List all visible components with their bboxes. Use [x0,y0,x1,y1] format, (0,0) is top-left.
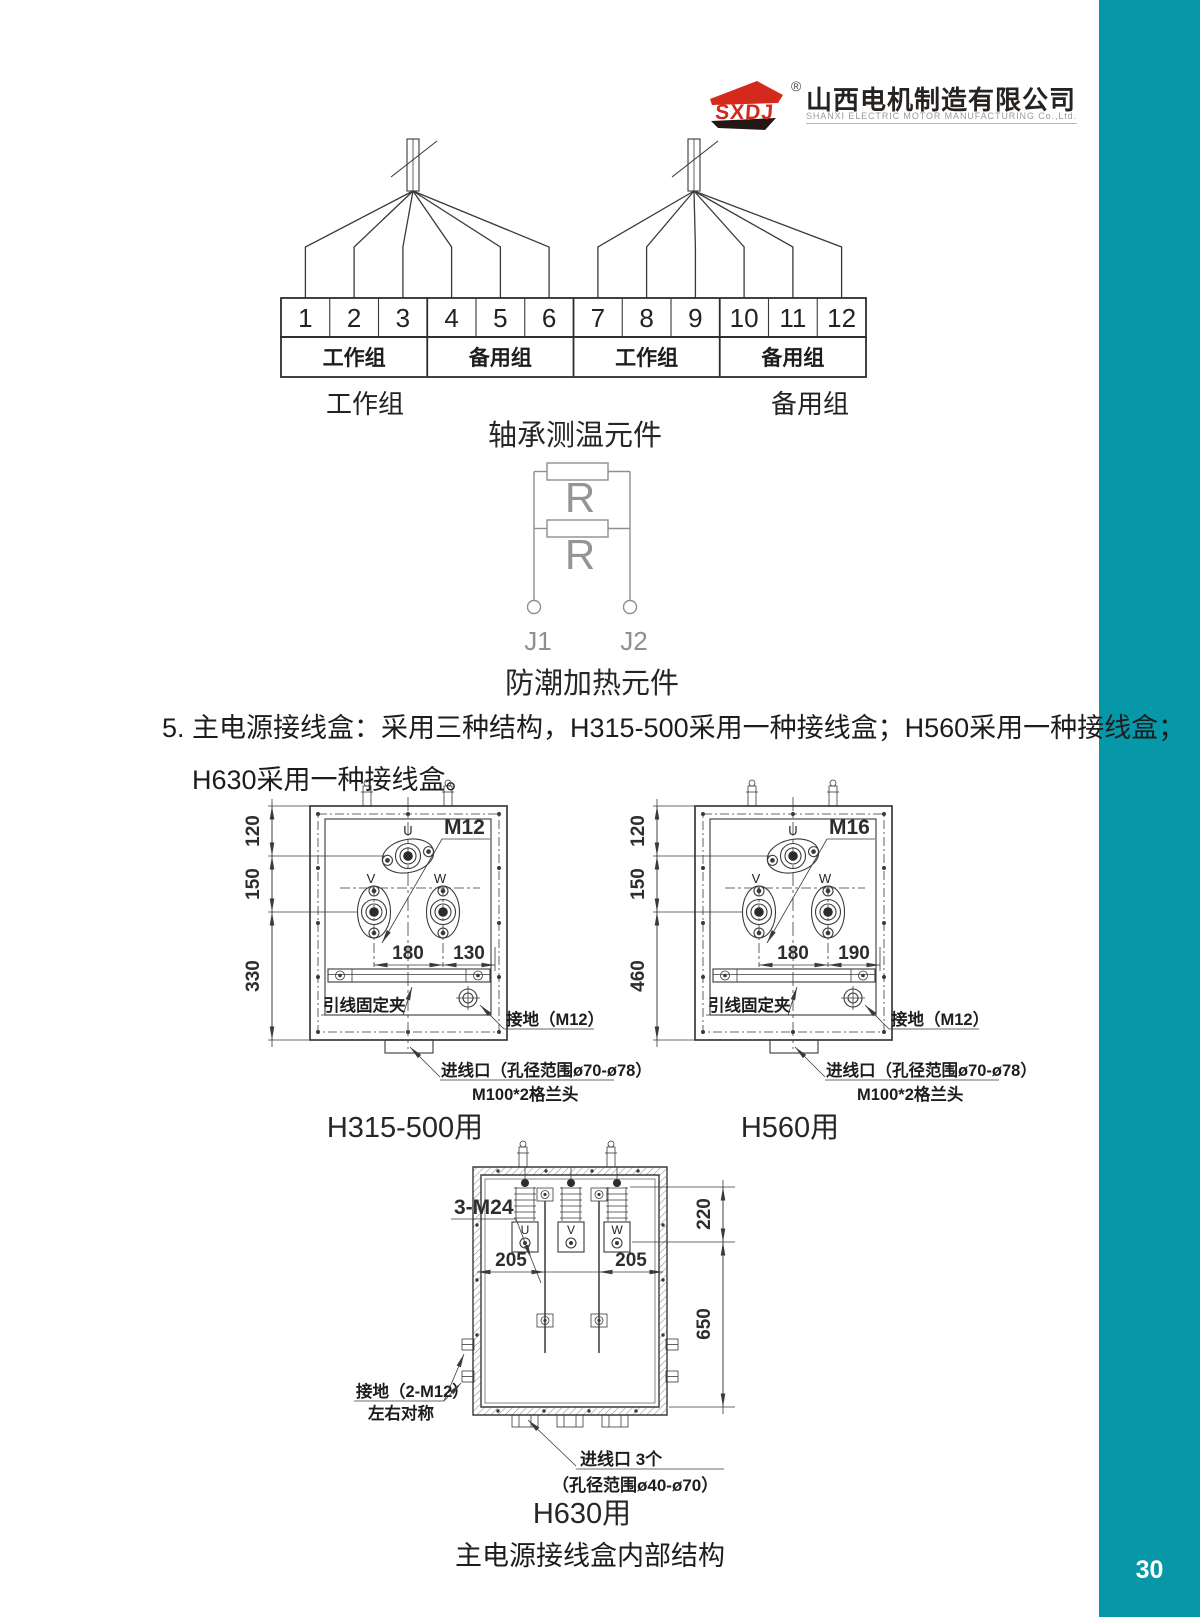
terminal-cell: 5 [493,303,507,333]
terminal-cell: 12 [827,303,856,333]
terminal-w: W [427,871,460,938]
dimension-horizontal: 180 130 [374,943,495,971]
junction-box-h560-drawing: 120 150 460 [625,755,1005,1155]
terminal-cell: 2 [347,303,361,333]
dim-190: 190 [838,943,870,964]
terminal-u-label: U [788,823,797,838]
inlet-label-2: （孔径范围ø40-ø70） [552,1475,718,1495]
logo-en-name: SHANXI ELECTRIC MOTOR MANUFACTURING Co.,… [806,111,1077,124]
lifting-bolt-icon [827,780,839,806]
inlet-label-2: M100*2格兰头 [857,1084,963,1104]
terminal-cell: 6 [542,303,556,333]
junction-box-h315-500-drawing: 120 150 330 [240,755,620,1155]
terminal-j1-label: J1 [524,626,551,656]
bearing-temp-diagram: 1 2 3 4 5 6 7 8 9 10 11 12 工作组 备用组 工作组 备… [255,125,895,465]
dim-205-left: 205 [495,1250,527,1271]
group-label: 备用组 [468,346,532,370]
clamp-label: 引线固定夹 [323,995,406,1015]
ground-label-1: 接地（2-M12） [356,1381,469,1401]
registered-mark: ® [791,78,801,94]
heater-diagram-caption: 防潮加热元件 [505,667,679,700]
terminal-cell: 9 [688,303,702,333]
terminal-v: V [358,871,391,938]
lifting-bolt-icon [517,1141,529,1167]
ground-bolt-icon [456,986,480,1010]
temp-probe-icon [672,139,718,191]
company-logo: SXDJ ® 山西电机制造有限公司 SHANXI ELECTRIC MOTOR … [706,74,1026,132]
lifting-bolt-icon [442,780,454,806]
svg-text:SXDJ: SXDJ [714,101,774,124]
stud-size-label: M16 [829,816,870,839]
inlet-label-1: 进线口 3个 [580,1449,663,1469]
dimension-horizontal: 180 190 [759,943,880,971]
dim-330: 330 [243,960,264,992]
terminal-w-label: W [819,871,832,886]
insulator-stud-u: U [512,1167,538,1252]
cable-inlet: 进线口（孔径范围ø70-ø78） M100*2格兰头 [385,1040,652,1104]
terminal-v-label: V [752,871,761,886]
terminal-cell: 11 [779,303,806,333]
clamp-label: 引线固定夹 [708,995,791,1015]
box-caption: H630用 [533,1498,631,1530]
dim-180: 180 [777,943,809,964]
dimension-horizontal: 205 205 [477,1250,663,1272]
ground-label: 接地（M12） [891,1009,989,1029]
terminal-v-label: V [367,871,376,886]
inlet-label-2: M100*2格兰头 [472,1084,578,1104]
inlet-callout: 进线口 3个 （孔径范围ø40-ø70） [528,1420,724,1495]
backup-group-label: 备用组 [771,389,849,419]
terminal-u-label: U [403,823,412,838]
dimension-chain-right: 220 650 [630,1180,735,1414]
logo-mark-icon: SXDJ [706,78,788,132]
terminal-cell: 10 [730,303,759,333]
terminal-cell: 1 [298,303,312,333]
dim-120: 120 [243,815,264,847]
ground-bolt-icon [841,986,865,1010]
cable-inlet: 进线口（孔径范围ø70-ø78） M100*2格兰头 [770,1040,1037,1104]
cables-and-clamps [537,1188,607,1353]
dim-130: 130 [453,943,485,964]
lead-clamp-bar [713,969,875,982]
ground-label: 接地（M12） [506,1009,604,1029]
ground-callout: 接地（2-M12） 左右对称 [354,1354,469,1423]
terminal-cell: 3 [396,303,410,333]
heater-diagram: R R J1 J2 防潮加热元件 [455,450,695,710]
clamp-callout: 引线固定夹 [706,987,797,1015]
terminal-v: V [743,871,776,938]
lifting-bolt-icon [746,780,758,806]
clamp-callout: 引线固定夹 [321,987,412,1015]
resistor-label: R [565,474,595,521]
section5-line1: 5. 主电源接线盒：采用三种结构，H315-500采用一种接线盒；H560采用一… [162,706,1185,745]
footer-caption: 主电源接线盒内部结构 [330,1534,850,1573]
resistor-label: R [565,531,595,578]
dim-120: 120 [628,815,649,847]
dim-205-right: 205 [615,1250,647,1271]
terminal-cell: 7 [591,303,605,333]
inlet-label-1: 进线口（孔径范围ø70-ø78） [826,1060,1037,1080]
probe-wires [305,191,841,298]
inlet-label-1: 进线口（孔径范围ø70-ø78） [441,1060,652,1080]
temp-probe-icon [391,139,437,191]
terminal-w-label: W [434,871,447,886]
insulator-stud-w: W [604,1167,630,1252]
group-label: 工作组 [615,346,678,370]
terminal-j2-label: J2 [620,626,647,656]
dim-460: 460 [628,960,649,992]
lead-clamp-bar [328,969,490,982]
stud-size-label: M12 [444,816,485,839]
group-label: 工作组 [323,346,386,370]
dim-650: 650 [694,1308,715,1340]
dim-220: 220 [694,1198,715,1230]
ground-label-2: 左右对称 [368,1403,435,1423]
ground-fittings [462,1339,678,1382]
terminal-w: W [812,871,845,938]
working-group-label: 工作组 [326,389,404,419]
lifting-bolt-icon [605,1141,617,1167]
page-number: 30 [1099,1556,1200,1585]
terminal-cell: 4 [444,303,458,333]
stud-w-label: W [611,1223,623,1237]
terminal-cell: 8 [639,303,653,333]
bearing-diagram-caption: 轴承测温元件 [488,419,662,452]
dim-150: 150 [628,868,649,900]
lifting-bolt-icon [361,780,373,806]
accent-sidebar [1099,0,1200,1617]
dim-150: 150 [243,868,264,900]
stud-v-label: V [567,1223,575,1237]
stud-size-label: 3-M24 [454,1196,514,1219]
terminal-numbers: 1 2 3 4 5 6 7 8 9 10 11 12 [298,303,856,333]
dim-180: 180 [392,943,424,964]
group-label: 备用组 [760,346,824,370]
catalog-page: 30 SXDJ ® 山西电机制造有限公司 SHANXI ELECTRIC MOT… [0,0,1200,1617]
junction-box-h630-drawing: U V W 3-M24 [330,1130,850,1550]
insulator-stud-v: V [558,1167,584,1252]
